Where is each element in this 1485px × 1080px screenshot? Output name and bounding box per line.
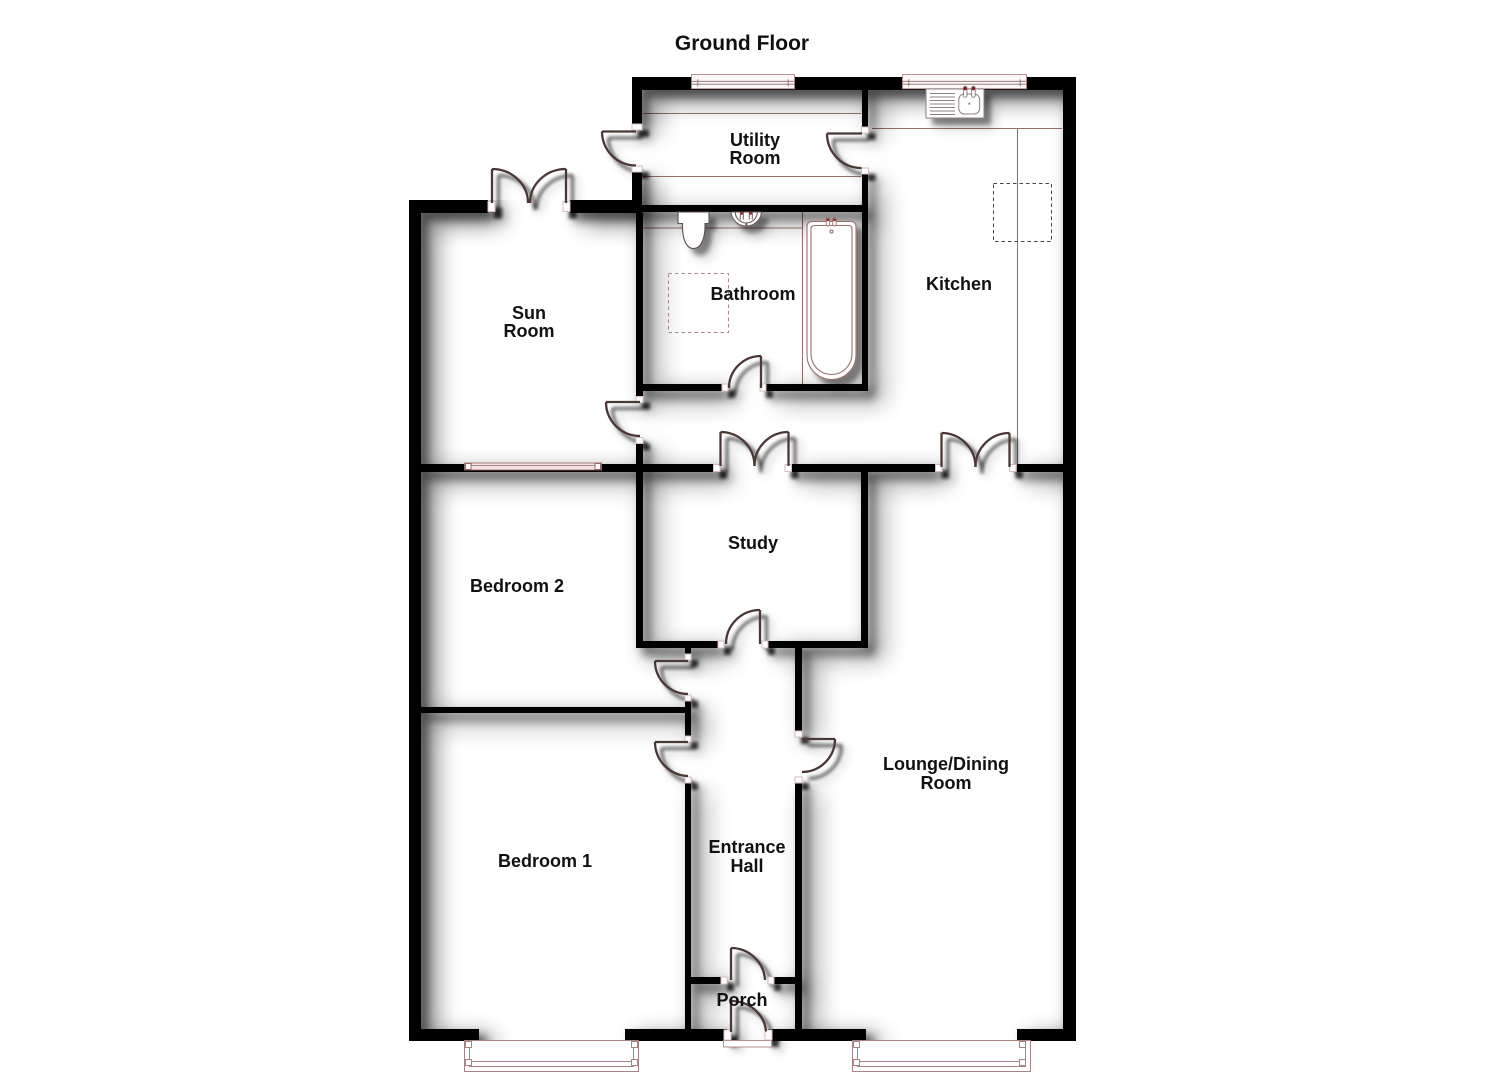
svg-text:Sun: Sun bbox=[512, 303, 546, 323]
svg-text:Hall: Hall bbox=[730, 856, 763, 876]
svg-text:Bathroom: Bathroom bbox=[711, 284, 796, 304]
svg-text:Ground Floor: Ground Floor bbox=[675, 32, 809, 55]
svg-text:Bedroom 2: Bedroom 2 bbox=[470, 576, 564, 596]
svg-text:Room: Room bbox=[921, 773, 972, 793]
svg-text:Room: Room bbox=[504, 321, 555, 341]
svg-text:Bedroom 1: Bedroom 1 bbox=[498, 851, 592, 871]
svg-text:Porch: Porch bbox=[716, 990, 767, 1010]
svg-text:Lounge/Dining: Lounge/Dining bbox=[883, 754, 1009, 774]
svg-text:Kitchen: Kitchen bbox=[926, 274, 992, 294]
svg-text:Entrance: Entrance bbox=[708, 837, 785, 857]
svg-text:Study: Study bbox=[728, 533, 778, 553]
svg-text:Room: Room bbox=[730, 148, 781, 168]
svg-text:Utility: Utility bbox=[730, 130, 780, 150]
